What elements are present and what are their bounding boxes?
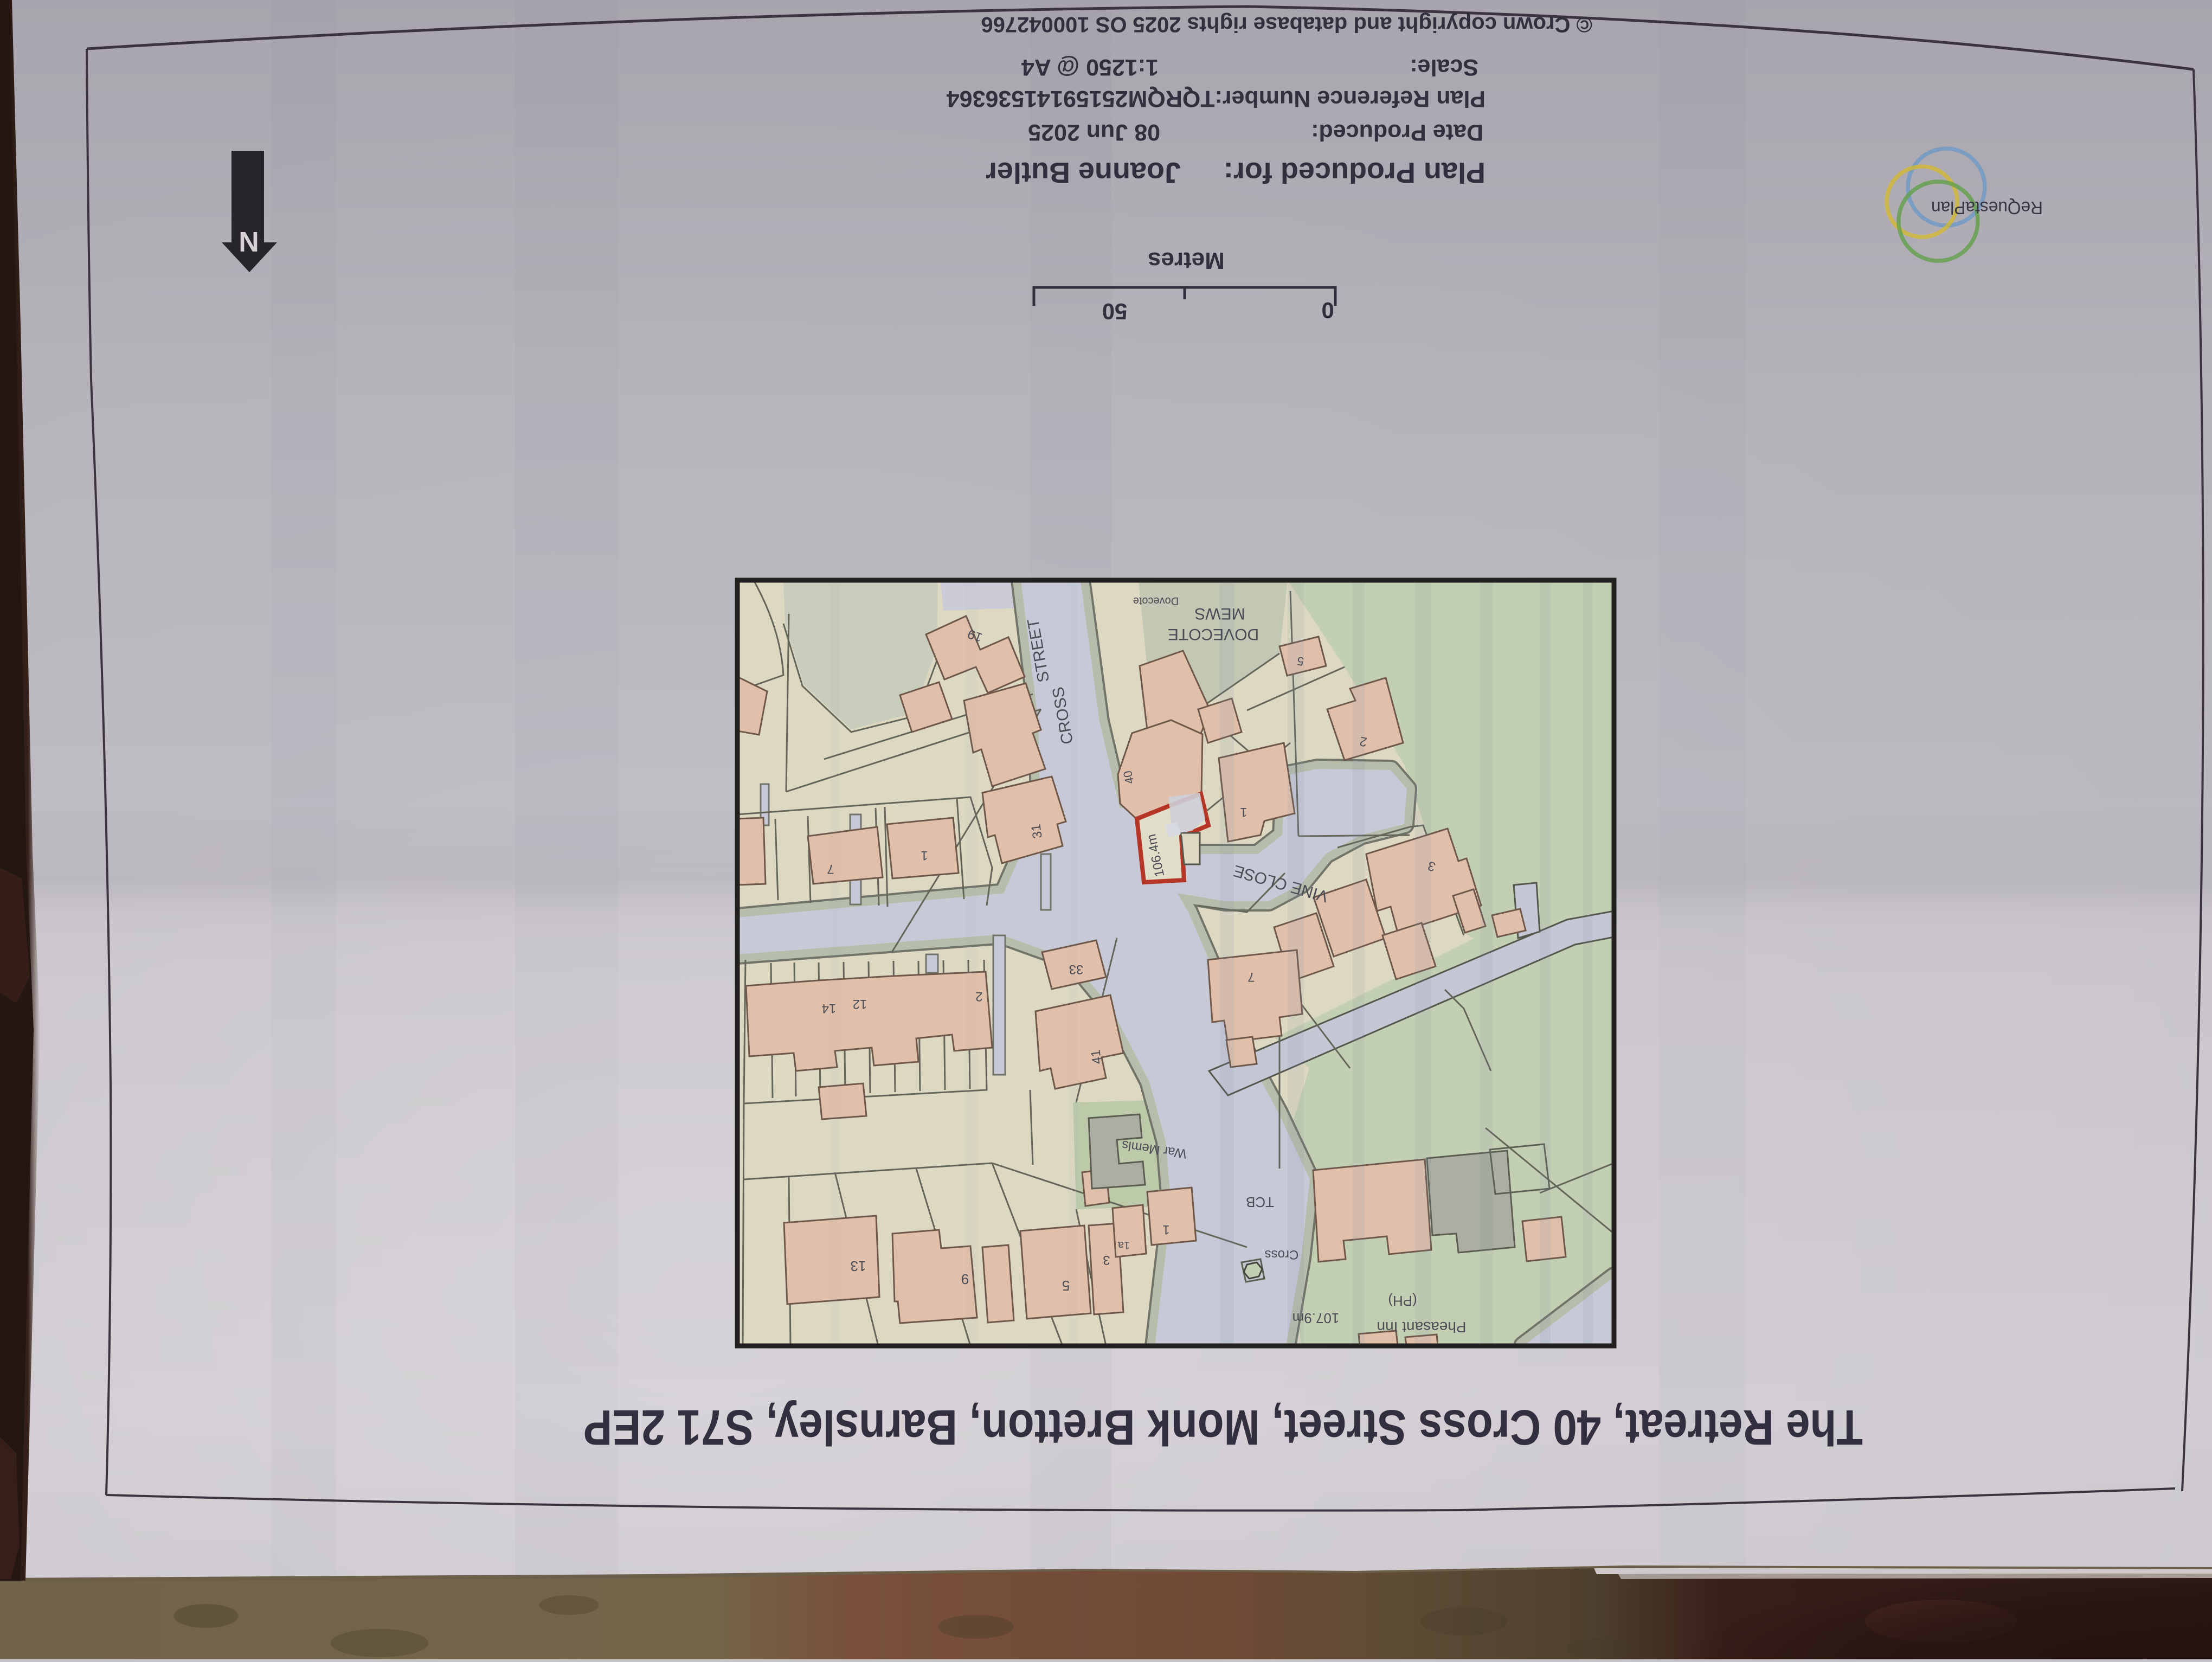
svg-text:ReQuestaPlan: ReQuestaPlan [1931, 198, 2043, 218]
svg-text:7: 7 [1248, 970, 1255, 984]
svg-text:Plan Reference Number:TQRQM251: Plan Reference Number:TQRQM2515914153636… [947, 86, 1486, 112]
svg-text:9: 9 [961, 1271, 969, 1287]
svg-text:31: 31 [1028, 823, 1045, 839]
svg-text:50: 50 [1102, 299, 1128, 324]
svg-text:1:1250 @ A4: 1:1250 @ A4 [1021, 54, 1159, 80]
svg-text:Plan Produced for:: Plan Produced for: [1224, 156, 1486, 189]
svg-text:41: 41 [1088, 1049, 1104, 1065]
svg-text:1a: 1a [1117, 1239, 1130, 1251]
svg-text:Date Produced:: Date Produced: [1311, 119, 1483, 145]
svg-text:MEWS: MEWS [1194, 605, 1245, 623]
svg-text:14: 14 [822, 1001, 837, 1016]
svg-text:5: 5 [1062, 1278, 1070, 1294]
svg-text:© Crown copyright and database: © Crown copyright and database rights 20… [981, 12, 1592, 36]
svg-text:7: 7 [827, 862, 834, 876]
svg-text:The Retreat, 40 Cross Street,: The Retreat, 40 Cross Street, Monk Brett… [583, 1400, 1863, 1455]
svg-text:N: N [239, 226, 259, 257]
svg-text:Cross: Cross [1265, 1247, 1299, 1262]
svg-text:1: 1 [1240, 805, 1247, 819]
svg-text:107.9m: 107.9m [1293, 1310, 1340, 1326]
svg-text:TCB: TCB [1246, 1194, 1274, 1210]
svg-text:Scale:: Scale: [1410, 54, 1478, 80]
svg-text:2: 2 [975, 989, 982, 1004]
svg-text:Metres: Metres [1148, 247, 1225, 274]
svg-text:40: 40 [1121, 769, 1137, 785]
svg-text:08 Jun 2025: 08 Jun 2025 [1028, 119, 1160, 145]
svg-text:0: 0 [1321, 298, 1334, 323]
svg-text:33: 33 [1069, 962, 1084, 977]
svg-text:Dovecote: Dovecote [1133, 595, 1179, 607]
svg-text:Joanne Butler: Joanne Butler [986, 156, 1181, 189]
svg-text:DOVECOTE: DOVECOTE [1168, 625, 1259, 643]
svg-text:3: 3 [1103, 1253, 1110, 1267]
svg-text:Pheasant Inn: Pheasant Inn [1377, 1319, 1466, 1336]
svg-text:12: 12 [853, 997, 867, 1011]
svg-text:13: 13 [851, 1258, 866, 1274]
svg-text:1: 1 [1162, 1222, 1169, 1237]
svg-text:1: 1 [921, 848, 928, 863]
svg-text:(PH): (PH) [1388, 1293, 1417, 1309]
